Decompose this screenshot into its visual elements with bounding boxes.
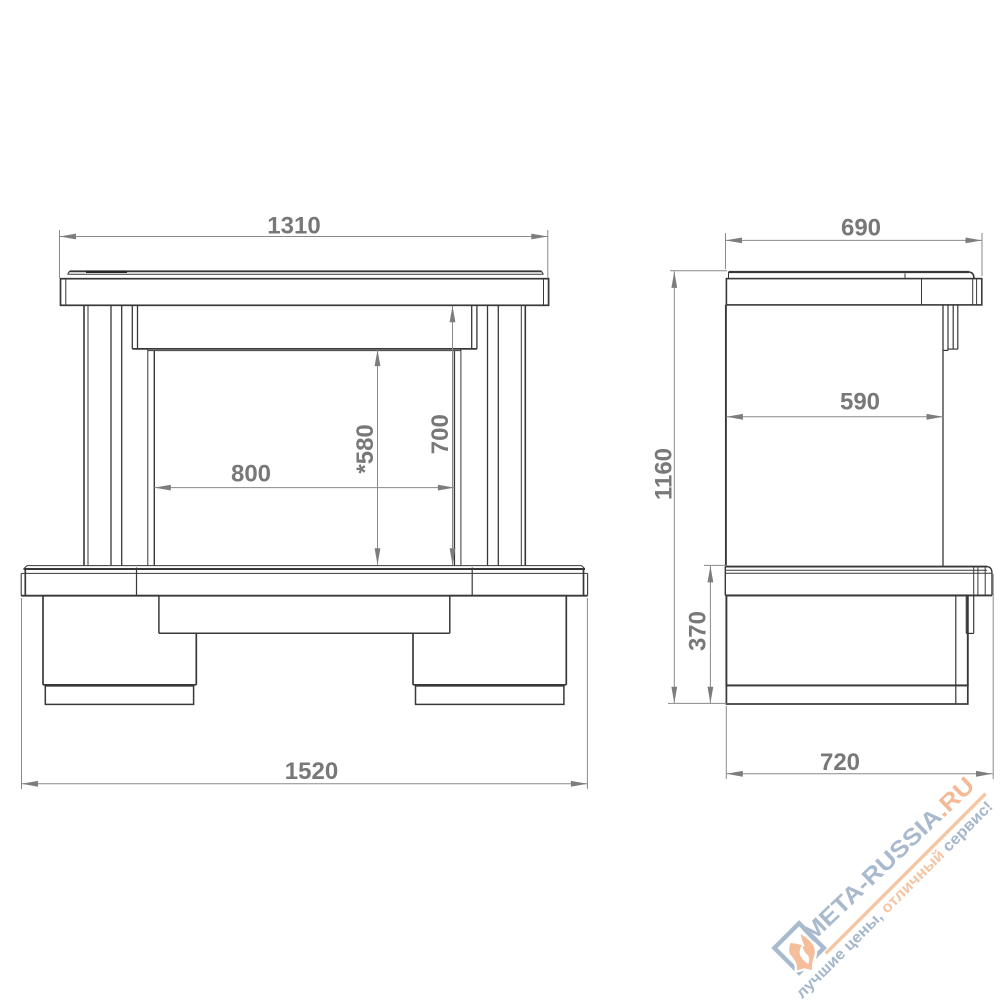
svg-text:590: 590 (840, 389, 880, 416)
svg-text:META-RUSSIA.RU: META-RUSSIA.RU (798, 772, 980, 947)
svg-text:700: 700 (427, 414, 454, 454)
svg-text:720: 720 (820, 749, 860, 776)
svg-text:1520: 1520 (285, 758, 338, 785)
svg-text:1310: 1310 (267, 212, 320, 239)
svg-text:370: 370 (685, 611, 712, 651)
svg-text:690: 690 (841, 215, 881, 242)
svg-text:1160: 1160 (650, 448, 677, 500)
svg-text:800: 800 (231, 461, 271, 488)
svg-text:*580: *580 (352, 424, 379, 473)
svg-text:лучшие цены, отличный сервис!: лучшие цены, отличный сервис! (793, 798, 997, 1000)
